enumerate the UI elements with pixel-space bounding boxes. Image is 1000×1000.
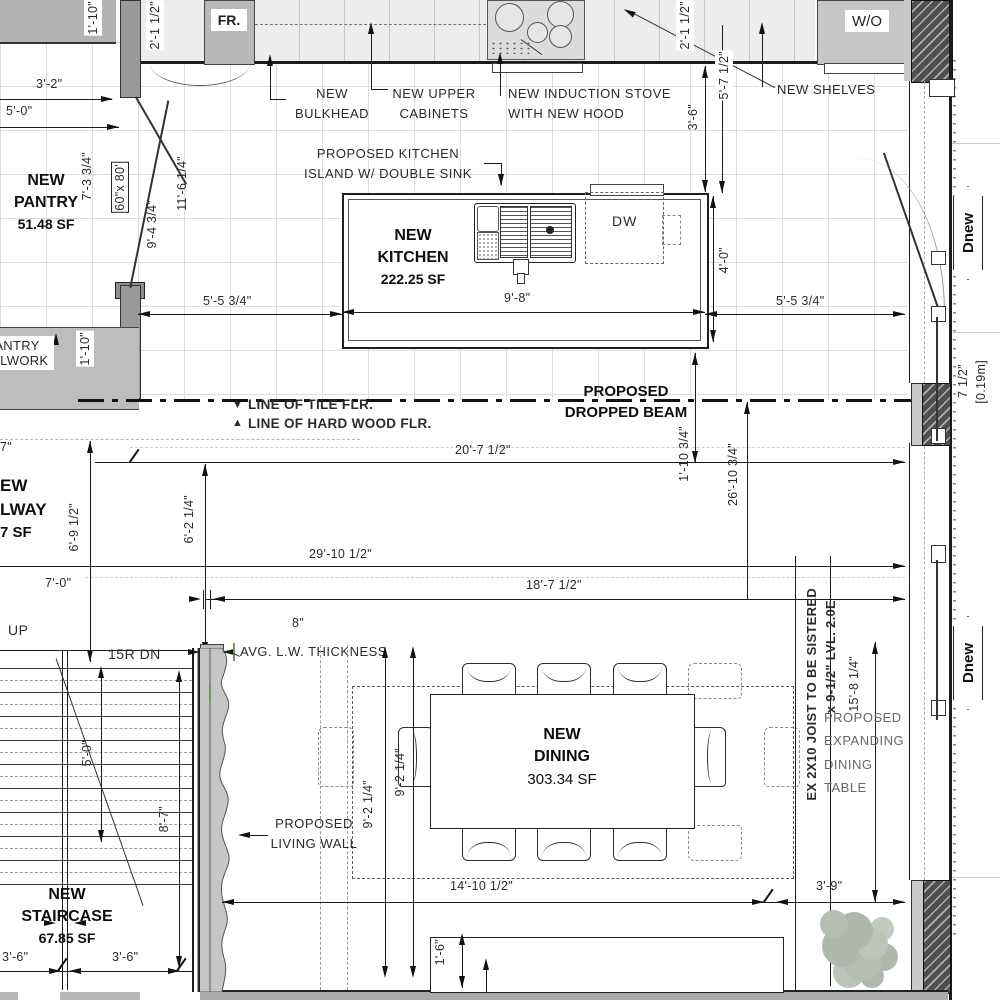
dim-line: [747, 402, 748, 599]
door-tag-dnew-2: Dnew: [953, 616, 983, 710]
note-up: UP: [8, 620, 28, 642]
dim-label: 5'-7 1/2": [715, 50, 733, 100]
leader-line: [486, 968, 487, 992]
dim-arrow: [98, 830, 104, 842]
ceiling-dash: [85, 577, 905, 578]
dim-label: 7'-3 3/4": [80, 152, 94, 200]
dim-arrow: [168, 968, 180, 974]
dim-arrow: [702, 180, 708, 192]
room-label-kitchen: NEW KITCHEN 222.25 SF: [368, 225, 458, 289]
dim-line: [0, 99, 112, 100]
dim-label: 5'-0": [6, 104, 32, 118]
dropped-beam-line: [78, 399, 948, 402]
leader-line: [270, 62, 271, 100]
leader-line: [762, 30, 763, 87]
dim-tick: [129, 449, 139, 463]
door-size-tag: 60"x 80': [111, 162, 129, 213]
dim-line: [90, 441, 91, 662]
dim-arrow: [692, 353, 698, 365]
wall-oven-label-box: W/O: [845, 10, 889, 32]
dim-line: [0, 566, 905, 567]
dim-line: [0, 127, 119, 128]
dishwasher-notch: [662, 215, 681, 245]
dim-label: 5'-5 3/4": [776, 294, 824, 308]
stair-hidden-line: [0, 800, 192, 801]
dim-arrow: [342, 309, 354, 315]
dim-arrow: [44, 920, 56, 926]
dim-arrow: [87, 650, 93, 662]
stair-wall-line: [192, 648, 194, 992]
dim-label: 3'-6": [112, 950, 138, 964]
dishwasher-label: DW: [612, 213, 637, 229]
faucet-stub: [517, 273, 525, 284]
door-hardware: [931, 251, 946, 265]
door-hardware: [931, 545, 946, 563]
dim-arrow: [74, 920, 86, 926]
leader-arrow: [483, 958, 489, 970]
stair-hidden-line: [0, 680, 192, 681]
dim-arrow: [702, 66, 708, 78]
leader-line: [484, 163, 502, 164]
note-hardwood-line: LINE OF HARD WOOD FLR.: [248, 416, 432, 431]
dim-line: [695, 353, 696, 463]
millwork-label: MILLWORK: [0, 353, 54, 368]
ghost-chair: [318, 727, 354, 787]
dim-arrow: [893, 459, 905, 465]
dim-arrow: [752, 899, 764, 905]
leader-arrow: [759, 22, 765, 34]
leader-arrow: [497, 52, 503, 64]
plant: [820, 910, 848, 938]
dim-label: 1'-6": [433, 939, 447, 965]
note-living-wall: PROPOSED LIVING WALL: [262, 814, 366, 854]
dim-arrow: [893, 899, 905, 905]
dim-label: 14'-10 1/2": [450, 879, 513, 893]
leader-arrow: [267, 54, 273, 66]
fridge-label: FR.: [218, 12, 241, 28]
millwork-label-box: PANTRY MILLWORK: [0, 336, 54, 370]
tri-down-icon: ▼: [232, 399, 243, 411]
wall-oven-label: W/O: [852, 13, 882, 30]
door-swing-arc: [858, 158, 945, 313]
dim-arrow: [459, 933, 465, 945]
dim-label: 1'-10": [84, 0, 102, 36]
dim-arrow: [776, 899, 788, 905]
dining-chair: [690, 727, 726, 787]
stair-hidden-line: [0, 872, 192, 873]
dim-label: 6'-2 1/4": [182, 495, 196, 543]
living-wall-wavy-edge: [196, 648, 238, 992]
dim-arrow: [705, 311, 717, 317]
stair-tread: [0, 692, 192, 693]
stair-tread: [0, 764, 192, 765]
note-bulkhead: NEW BULKHEAD: [284, 84, 380, 124]
dim-arrow: [138, 311, 150, 317]
leader-arrow: [498, 174, 504, 186]
ceiling-dash: [0, 439, 360, 440]
dim-tick: [210, 590, 211, 609]
room-label-dining: NEW DINING 303.34 SF: [497, 724, 627, 790]
dim-arrow: [202, 464, 208, 476]
dim-label: 6'-9 1/2": [67, 503, 81, 551]
sink-drainboard-dots: [477, 232, 499, 260]
dim-arrow: [382, 966, 388, 978]
dim-line: [385, 656, 386, 970]
leader-arrow: [368, 22, 374, 34]
burner-icon: [495, 3, 524, 32]
dim-line: [205, 464, 206, 654]
dim-arrow: [893, 596, 905, 602]
hood-outline: [492, 63, 583, 73]
door-hardware: [931, 428, 946, 444]
dim-line: [95, 462, 905, 463]
dim-label: 2'-1 1/2": [146, 0, 164, 50]
millwork-label: PANTRY: [0, 338, 54, 353]
siding-ticks: [953, 60, 956, 940]
shelf-under-oven: [824, 63, 909, 74]
dim-label: 4'-0": [717, 247, 731, 273]
bottom-wall-segment: [60, 992, 140, 1000]
dim-label: 9'-8": [504, 291, 530, 305]
dim-label: 9'-2 1/4": [393, 748, 407, 796]
margin-line: [952, 877, 1000, 878]
room-label-hallway: EW LWAY 7 SF: [0, 474, 47, 543]
dim-line: [138, 314, 342, 315]
dim-line: [705, 314, 905, 315]
stair-hidden-line: [0, 728, 192, 729]
note-expanding-table: PROPOSED EXPANDING DINING TABLE: [824, 706, 904, 800]
dim-line: [0, 971, 192, 972]
stair-tread: [0, 716, 192, 717]
note-joist: x 9-1/2" LVL. 2.0E: [823, 600, 838, 713]
dim-label: 8'-7": [157, 806, 171, 832]
floor-plan: FR. W/O 1'-10" 2'-1 1/2" 3'-2" 5'-0" NEW…: [0, 0, 1000, 1000]
room-label-pantry: NEW PANTRY 51.48 SF: [8, 170, 84, 234]
stair-tread: [0, 740, 192, 741]
note-upper-cabinets: NEW UPPER CABINETS: [388, 84, 480, 124]
dim-arrow: [692, 451, 698, 463]
dim-arrow: [872, 890, 878, 902]
sink-drain-icon: [546, 226, 554, 234]
burner-icon: [549, 25, 572, 48]
leader-line: [371, 30, 372, 90]
dim-arrow: [101, 96, 113, 102]
note-dropped-beam: PROPOSED DROPPED BEAM: [540, 381, 712, 423]
stair-break-line: [55, 658, 143, 906]
dining-chair: [537, 825, 591, 861]
dim-arrow: [872, 642, 878, 654]
dim-line: [713, 196, 714, 342]
dim-label: 1'-10": [76, 331, 94, 367]
dim-label: 8": [292, 616, 304, 630]
stair-hidden-line: [0, 848, 192, 849]
dim-arrow: [69, 968, 81, 974]
dim-label: 3'-6": [2, 950, 28, 964]
dim-arrow: [49, 968, 61, 974]
dim-label: 7 1/2": [956, 364, 970, 398]
bottom-wall-segment: [0, 992, 18, 1000]
leader-line: [500, 60, 501, 96]
dim-arrow: [459, 976, 465, 988]
dim-line: [342, 312, 705, 313]
tri-up-icon: ▲: [232, 417, 243, 429]
dim-arrow: [719, 181, 725, 193]
door-tag-dnew-1: Dnew: [953, 186, 983, 280]
dim-line: [413, 656, 414, 970]
note-joist: EX 2X10 JOIST TO BE SISTERED: [804, 588, 819, 801]
wall-hatched-top-right: [911, 0, 953, 83]
dim-line: [205, 599, 905, 600]
burner-icon: [547, 1, 574, 28]
note-15r-dn: 15R DN: [108, 644, 161, 666]
wall-column-top: [120, 0, 141, 98]
dim-arrow: [176, 670, 182, 682]
dim-arrow: [107, 124, 119, 130]
door-hardware: [931, 306, 946, 322]
dim-label: 7": [0, 440, 12, 454]
dim-arrow: [87, 441, 93, 453]
dim-arrow: [693, 309, 705, 315]
stair-tread: [0, 836, 192, 837]
door-panel: [936, 560, 938, 720]
wall-hatched-bottom-right: [923, 880, 951, 994]
green-mark: [209, 684, 211, 700]
stair-edge: [0, 650, 192, 651]
room-label-staircase: NEW STAIRCASE 67.85 SF: [12, 884, 122, 948]
dim-arrow: [189, 596, 201, 602]
dim-label: 5'-0": [80, 740, 94, 766]
stair-hidden-line: [0, 704, 192, 705]
stair-tread: [0, 668, 192, 669]
note-induction-stove: NEW INDUCTION STOVE WITH NEW HOOD: [508, 84, 671, 124]
dim-line: [795, 556, 796, 990]
dim-label: 3'-6": [686, 104, 700, 130]
fridge-label-box: FR.: [211, 9, 247, 31]
dim-label: 29'-10 1/2": [309, 547, 372, 561]
dim-label: 5'-5 3/4": [203, 294, 251, 308]
dim-label: 2'-1 1/2": [676, 0, 694, 50]
sink-drainboard-top: [477, 206, 499, 232]
note-tile-line: LINE OF TILE FLR.: [248, 397, 373, 412]
dim-line: [705, 66, 706, 192]
burner-icon: [527, 22, 548, 43]
leader-arrow: [238, 832, 250, 838]
door-hardware: [931, 700, 946, 716]
dim-arrow: [893, 563, 905, 569]
ghost-chair: [688, 825, 742, 861]
ghost-chair: [688, 663, 742, 699]
dim-arrow: [410, 966, 416, 978]
dim-line: [222, 902, 905, 903]
dim-label: 11'-6 1/4": [175, 156, 189, 211]
dining-chair: [462, 825, 516, 861]
dim-arrow: [710, 330, 716, 342]
wall-inner-face: [909, 443, 910, 880]
dining-chair: [613, 825, 667, 861]
note-shelves: NEW SHELVES: [777, 80, 875, 100]
dim-label: 1'-10 3/4": [677, 426, 691, 482]
stair-tread: [0, 788, 192, 789]
dim-arrow: [330, 311, 342, 317]
dim-line: [101, 678, 102, 842]
dim-tick: [203, 590, 204, 609]
dim-label: 18'-7 1/2": [526, 578, 582, 592]
door-panel: [936, 317, 938, 441]
margin-line: [952, 143, 1000, 144]
dim-arrow: [410, 646, 416, 658]
dim-arrow: [744, 402, 750, 414]
margin-line: [952, 332, 1000, 333]
dim-label: 20'-7 1/2": [455, 443, 511, 457]
door-head-jamb: [929, 79, 955, 97]
dim-arrow: [710, 196, 716, 208]
dim-label: 7'-0": [45, 576, 71, 590]
ceiling-dash: [130, 447, 905, 448]
note-island: PROPOSED KITCHEN ISLAND W/ DOUBLE SINK: [290, 144, 486, 184]
dim-label: [0.19m]: [974, 360, 988, 404]
dim-arrow: [382, 646, 388, 658]
dim-arrow: [222, 899, 234, 905]
dim-label: 26'-10 3/4": [726, 443, 740, 506]
dim-tick: [763, 889, 773, 903]
stair-hidden-line: [0, 752, 192, 753]
dim-arrow: [213, 596, 225, 602]
dim-label: 3'-2": [36, 77, 62, 91]
dim-label: 15'-8 1/4": [847, 656, 861, 712]
dim-arrow: [98, 666, 104, 678]
note-lw-thickness: AVG. L.W. THICKNESS: [240, 642, 387, 662]
dim-label: 9'-4 3/4": [145, 200, 159, 248]
wall-outer-face: [949, 0, 952, 1000]
dim-line: [179, 678, 180, 968]
stair-tread: [0, 860, 192, 861]
sink-basin-left: [500, 206, 528, 258]
